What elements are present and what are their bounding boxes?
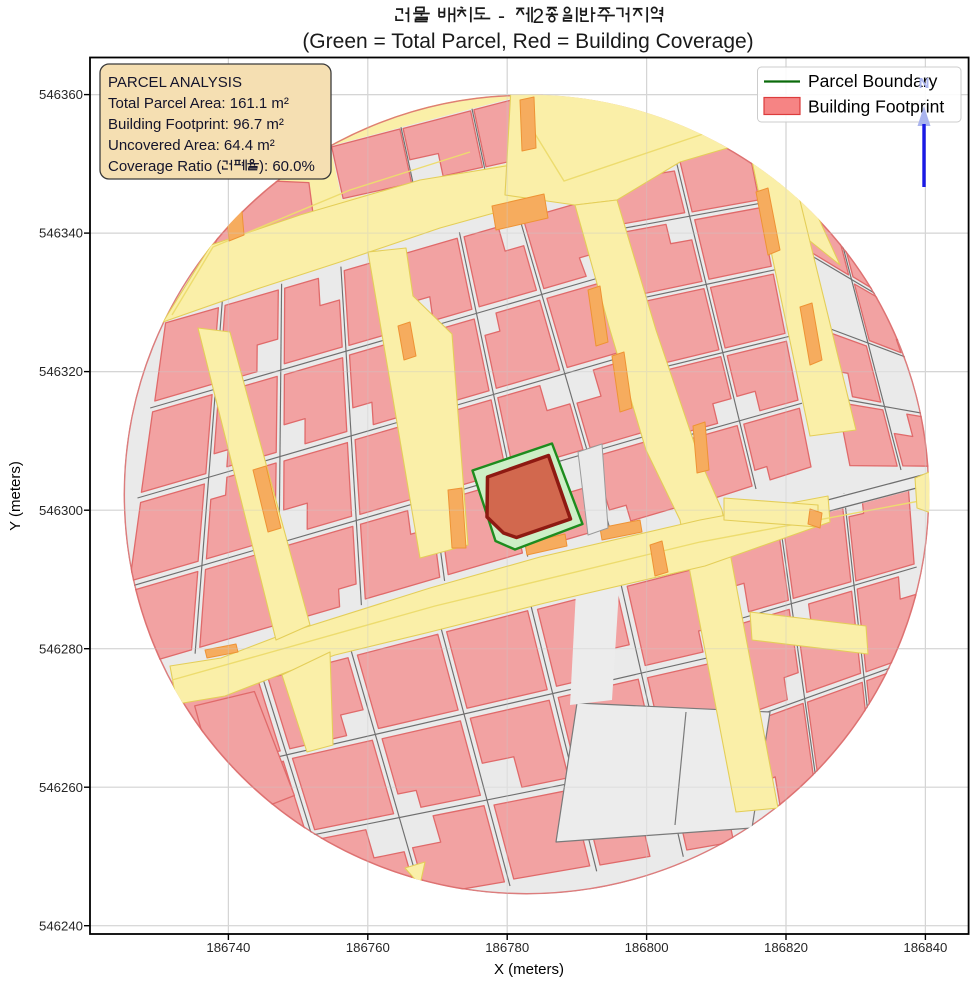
svg-text:X (meters): X (meters): [494, 961, 564, 978]
svg-text:Building Footprint: 96.7 m²: Building Footprint: 96.7 m²: [108, 116, 284, 133]
svg-text:546340: 546340: [39, 226, 83, 241]
svg-text:-: -: [498, 5, 505, 28]
svg-text:546240: 546240: [39, 918, 83, 933]
svg-text:546320: 546320: [39, 364, 83, 379]
svg-text:186820: 186820: [764, 940, 808, 955]
svg-text:546300: 546300: [39, 503, 83, 518]
svg-text:Y (meters): Y (meters): [7, 461, 24, 531]
svg-text:Total Parcel Area: 161.1 m²: Total Parcel Area: 161.1 m²: [108, 95, 289, 112]
svg-text:546260: 546260: [39, 780, 83, 795]
svg-text:(Green = Total Parcel, Red = B: (Green = Total Parcel, Red = Building Co…: [302, 30, 753, 53]
svg-text:186760: 186760: [346, 940, 390, 955]
svg-text:Uncovered Area: 64.4 m²: Uncovered Area: 64.4 m²: [108, 137, 275, 154]
svg-text:546360: 546360: [39, 87, 83, 102]
svg-text:PARCEL ANALYSIS: PARCEL ANALYSIS: [108, 74, 242, 91]
svg-text:186800: 186800: [625, 940, 669, 955]
svg-text:186780: 186780: [485, 940, 529, 955]
svg-text:546280: 546280: [39, 641, 83, 656]
svg-text:): 60.0%: ): 60.0%: [259, 158, 315, 175]
svg-text:2: 2: [533, 5, 545, 28]
svg-text:186740: 186740: [206, 940, 250, 955]
svg-text:Coverage Ratio (: Coverage Ratio (: [108, 158, 221, 175]
svg-text:N: N: [919, 75, 930, 92]
svg-text:186840: 186840: [903, 940, 947, 955]
